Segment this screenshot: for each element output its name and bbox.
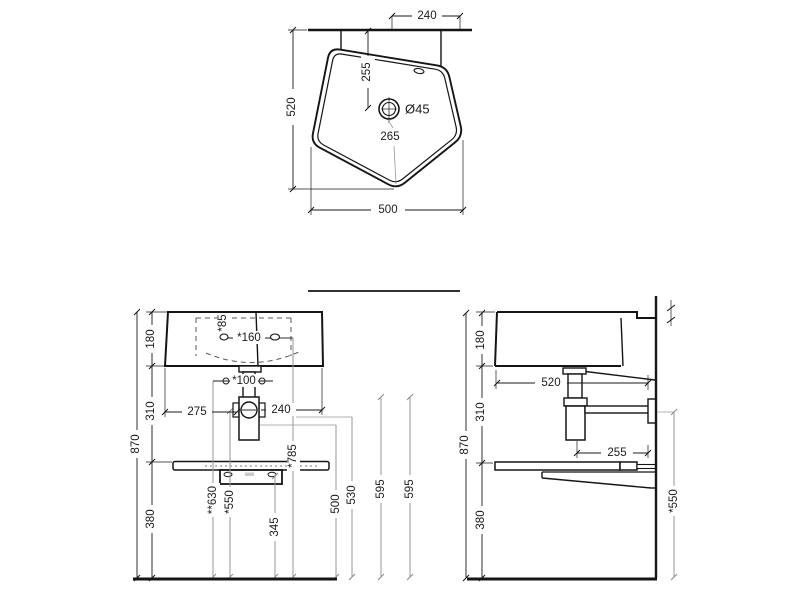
dim-label-275: 275: [187, 406, 206, 418]
tailpipe-flange: [239, 366, 261, 372]
dim-label-500-front: 500: [330, 494, 342, 513]
dimension-column-heights-side: 180 310 380 870: [459, 310, 495, 581]
dim-label-345: 345: [269, 517, 281, 536]
dim-label-520-side: 520: [541, 377, 560, 389]
dim-label-550-side: *550: [668, 489, 680, 513]
dim-label-380-side: 380: [475, 510, 487, 529]
dim-label-240-front: 240: [271, 404, 290, 416]
dimension-tap-hole-offset: *85: [217, 313, 230, 333]
dim-label-180-front: 180: [145, 329, 157, 348]
dim-label-595a: 595: [375, 479, 387, 498]
front-view: *85 *160: [130, 291, 460, 581]
dim-label-265: 265: [380, 131, 399, 143]
dim-label-255-side: 255: [607, 447, 626, 459]
dimension-fixing-spacing: *100: [213, 374, 273, 387]
dim-label-310-front: 310: [145, 401, 157, 420]
dim-label-310-side: 310: [475, 402, 487, 421]
reference-labels: *785 **630 *550 345 500 530 595 595: [207, 441, 417, 541]
dimension-hanger-spacing: 240: [389, 9, 463, 29]
shelf-end-cap: [620, 462, 637, 470]
dim-label-255: 255: [361, 62, 373, 81]
bracket-mark: [245, 473, 254, 477]
dim-label-785: *785: [287, 444, 299, 468]
rim-ticks: [667, 300, 675, 326]
reference-outlet-height-side: *550: [657, 409, 681, 580]
dimension-left-to-drain: 275: [162, 368, 240, 418]
dim-label-500-top: 500: [378, 204, 397, 216]
dim-label-630: **630: [207, 486, 219, 514]
technical-drawing-canvas: 240 255 Ø45 265: [0, 0, 800, 600]
dim-label-160: *160: [237, 332, 261, 344]
dim-label-520-top: 520: [286, 97, 298, 116]
dim-label-380-front: 380: [145, 509, 157, 528]
dim-label-drain-diameter: Ø45: [405, 102, 430, 117]
tailpipe-flange-side: [563, 368, 586, 374]
dim-label-870-front: 870: [130, 434, 142, 453]
dim-label-870-side: 870: [459, 435, 471, 454]
basin-side-top: [497, 312, 655, 318]
basin-side-back: [621, 318, 623, 366]
dimension-trap-to-wall: 255: [574, 441, 651, 459]
washbasin-dimension-drawing: 240 255 Ø45 265: [0, 0, 800, 600]
trap-body-side: [566, 406, 585, 440]
outlet-pipe: [585, 406, 649, 413]
trap-top-side: [564, 398, 587, 406]
dim-label-180-side: 180: [475, 330, 487, 349]
top-view: 240 255 Ø45 265: [286, 9, 472, 217]
shelf-side: [495, 462, 620, 470]
basin-side-front: [495, 312, 497, 366]
dim-label-85: *85: [217, 314, 229, 331]
dim-label-550-front: *550: [224, 490, 236, 514]
dim-label-595b: 595: [404, 479, 416, 498]
bracket-wedge: [542, 472, 655, 488]
dim-label-100: *100: [232, 375, 256, 387]
dim-label-530: 530: [346, 485, 358, 504]
dim-label-240-top: 240: [417, 10, 436, 22]
shelf-wall-tab: [637, 465, 656, 469]
side-view: 520 255 180 310 380: [459, 296, 681, 581]
tailpipe-side: [568, 374, 582, 398]
